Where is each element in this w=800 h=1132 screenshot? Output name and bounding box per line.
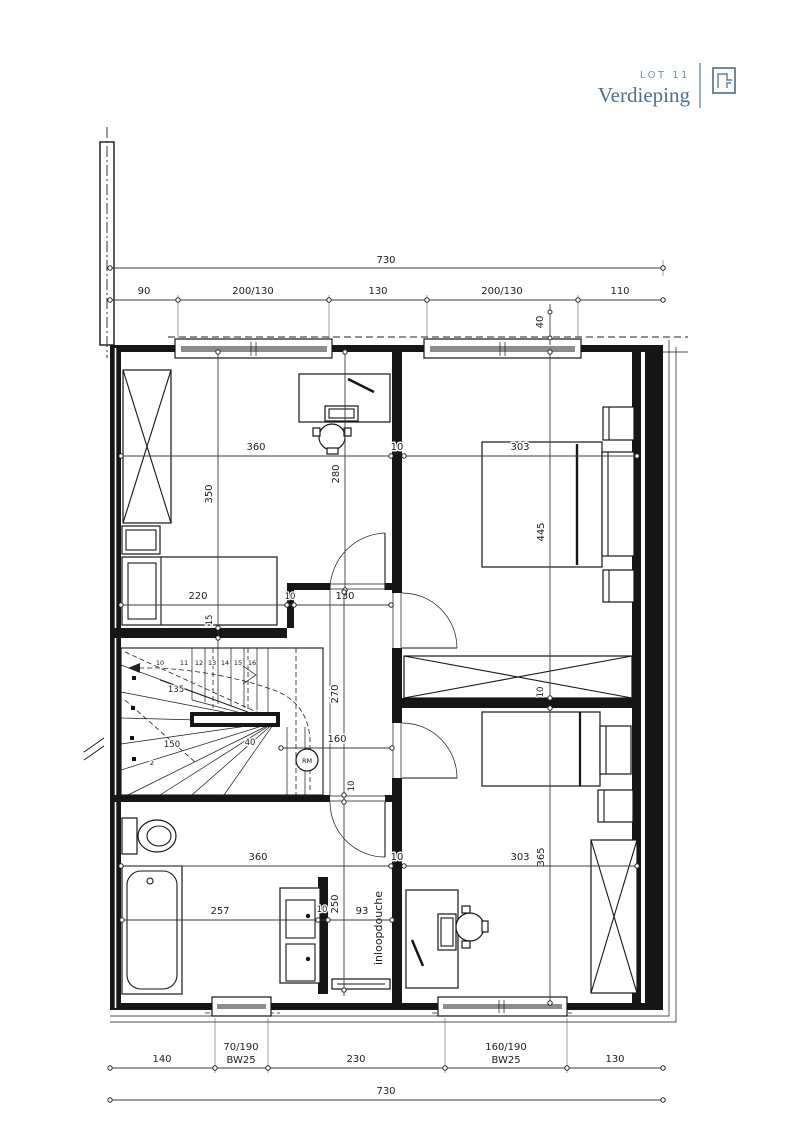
- dim-bedroom1-inner: 280: [331, 464, 342, 483]
- stair-step-number: 10: [156, 659, 164, 667]
- dim-wall: 10: [347, 781, 357, 792]
- party-wall-marker: [84, 127, 114, 760]
- stair-dim-40: 40: [245, 738, 256, 748]
- door-bedroom3: [393, 723, 457, 778]
- dim-bottom-3: 130: [605, 1054, 624, 1065]
- shower-label: inloopdouche: [372, 891, 385, 965]
- door-bedroom2: [393, 593, 457, 648]
- stair-step-number: 11: [180, 659, 188, 667]
- stair-dim-135: 135: [168, 685, 184, 695]
- dim-bedroom1-depth: 350: [204, 484, 215, 503]
- dim-bedroom2-depth: 445: [536, 522, 547, 541]
- dim-bottom-window1-type: BW25: [226, 1055, 255, 1066]
- dim-bathroom-width: 360: [248, 852, 267, 863]
- bedroom1-furniture: [122, 370, 390, 625]
- dim-bottom-window2-type: BW25: [491, 1055, 520, 1066]
- dim-wall: 10: [317, 905, 328, 915]
- dim-wall: 10: [391, 442, 404, 453]
- window-bottom-right: [438, 997, 567, 1016]
- nightstand: [603, 570, 634, 602]
- desk: [299, 374, 390, 422]
- wardrobe: [591, 840, 637, 993]
- dim-wall: 10: [391, 852, 404, 863]
- stair-step-number: 13: [208, 659, 216, 667]
- page-title: Verdieping: [598, 83, 691, 107]
- dim-bottom-total: 730: [376, 1086, 395, 1097]
- dim-bathroom-depth: 250: [330, 894, 341, 913]
- dim-top-2: 200/130: [232, 286, 274, 297]
- window-top-right: [424, 339, 581, 358]
- nightstand: [603, 407, 634, 440]
- dim-shower-width: 93: [356, 906, 369, 917]
- dim-bedroom3-width: 303: [510, 852, 529, 863]
- stair-step-number: 14: [221, 659, 229, 667]
- dim-wall15: 15: [205, 615, 215, 626]
- nightstand: [122, 526, 160, 554]
- dim-top-1: 90: [138, 286, 151, 297]
- dim-bedroom1-width: 360: [246, 442, 265, 453]
- desk-chair: [456, 906, 488, 948]
- dim-bedroom2-width: 303: [510, 442, 529, 453]
- dim-bottom-window2: 160/190: [485, 1042, 527, 1053]
- dim-hall-depth: 270: [330, 684, 341, 703]
- double-washbasin: [280, 888, 320, 983]
- dim-bedroom3-depth: 365: [536, 847, 547, 866]
- double-bed: [482, 442, 634, 567]
- dim-bottom-2: 230: [346, 1054, 365, 1065]
- door-bedroom1: [330, 533, 385, 590]
- smoke-detector: RM: [296, 749, 318, 771]
- architect-logo-icon: [713, 68, 735, 93]
- toilet: [122, 818, 176, 854]
- dim-bathtub-zone: 257: [210, 906, 229, 917]
- dim-hall-width: 160: [327, 734, 346, 745]
- stair-step-number: 12: [195, 659, 203, 667]
- stair-step-number: 16: [248, 659, 256, 667]
- dim-top-5: 110: [610, 286, 629, 297]
- floor-plan-drawing: LOT 11 Verdieping: [0, 0, 800, 1132]
- dim-bottom-1: 140: [152, 1054, 171, 1065]
- wardrobe: [123, 370, 171, 523]
- dim-offset-40: 40: [535, 316, 546, 329]
- dim-bottom-window1: 70/190: [223, 1042, 258, 1053]
- dim-wall: 10: [285, 592, 296, 602]
- desk: [406, 890, 458, 988]
- stair-dim-150: 150: [164, 740, 180, 750]
- dim-bed1: 220: [188, 591, 207, 602]
- floor-plan-page: LOT 11 Verdieping: [0, 0, 800, 1132]
- dim-top-4: 200/130: [481, 286, 523, 297]
- stair-step-number: 15: [234, 659, 242, 667]
- lot-label: LOT 11: [640, 70, 690, 81]
- stair-step-number: 2: [150, 759, 154, 767]
- smoke-detector-label: RM: [302, 757, 312, 765]
- dim-wall: 10: [536, 687, 546, 698]
- window-top-left: [175, 339, 332, 358]
- window-bottom-left: [212, 997, 271, 1016]
- header: LOT 11 Verdieping: [598, 63, 735, 108]
- single-bed: [482, 712, 631, 786]
- door-bathroom: [330, 796, 385, 857]
- dim-top-3: 130: [368, 286, 387, 297]
- bathtub: [122, 866, 182, 994]
- dim-top-total: 730: [376, 255, 395, 266]
- wardrobe: [404, 656, 632, 698]
- nightstand: [598, 790, 633, 822]
